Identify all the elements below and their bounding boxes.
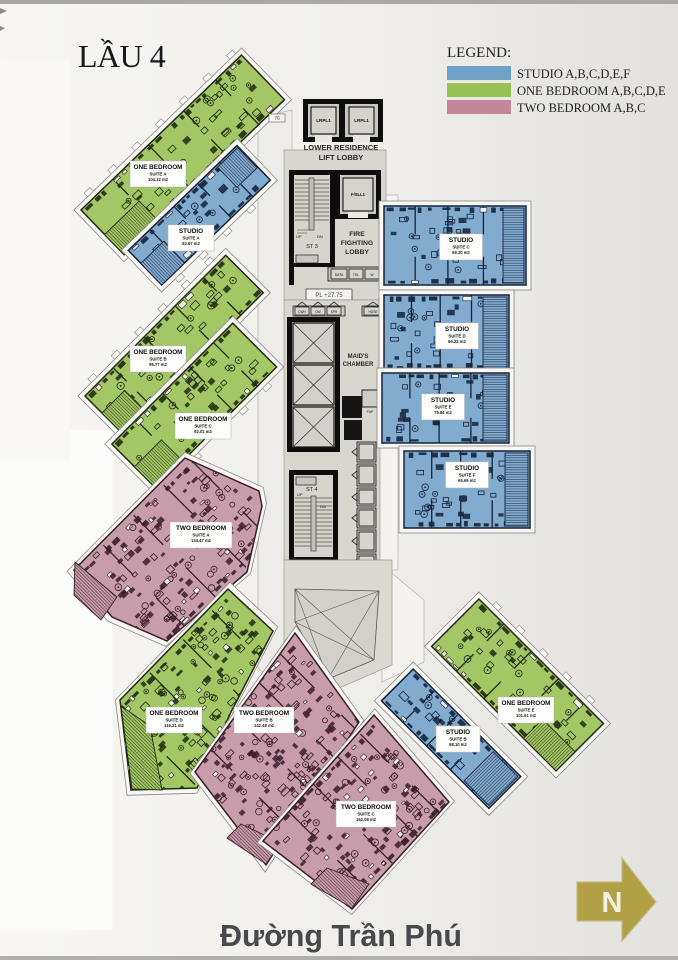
svg-text:STUDIO: STUDIO <box>431 397 455 404</box>
svg-text:69.30 m2: 69.30 m2 <box>452 250 470 255</box>
svg-text:104.12 m2: 104.12 m2 <box>148 177 169 182</box>
svg-text:LEGEND:: LEGEND: <box>447 45 511 61</box>
svg-text:SUITE D: SUITE D <box>448 334 465 339</box>
svg-text:76.84 m2: 76.84 m2 <box>434 410 452 415</box>
svg-text:TWO BEDROOM: TWO BEDROOM <box>176 525 226 532</box>
svg-text:101.61 m2: 101.61 m2 <box>516 713 537 718</box>
svg-text:FIGHTING: FIGHTING <box>341 240 373 247</box>
svg-text:LIFT LOBBY: LIFT LOBBY <box>319 153 364 162</box>
svg-text:STUDIO: STUDIO <box>449 237 473 244</box>
svg-text:TWO BEDROOM: TWO BEDROOM <box>239 710 289 717</box>
svg-text:F/SLL1: F/SLL1 <box>351 192 366 197</box>
svg-text:SUITE C: SUITE C <box>452 245 470 250</box>
svg-text:LRPL1: LRPL1 <box>316 118 331 123</box>
svg-text:ONE BEDROOM A,B,C,D,E: ONE BEDROOM A,B,C,D,E <box>517 84 666 98</box>
svg-text:MAID'S: MAID'S <box>348 354 369 360</box>
svg-text:DN: DN <box>320 504 326 509</box>
svg-text:134.47 m2: 134.47 m2 <box>191 538 212 543</box>
svg-text:STUDIO: STUDIO <box>179 228 203 235</box>
svg-text:SUITE C: SUITE C <box>357 812 375 817</box>
svg-text:DN: DN <box>317 234 323 239</box>
svg-text:UP: UP <box>297 492 303 497</box>
svg-text:SUITE B: SUITE B <box>255 718 272 723</box>
svg-text:SUITE E: SUITE E <box>517 708 534 713</box>
svg-text:SUITE D: SUITE D <box>165 718 182 723</box>
svg-text:SUITE B: SUITE B <box>149 357 166 362</box>
svg-text:SUITE A: SUITE A <box>149 172 167 177</box>
svg-text:UP: UP <box>296 234 302 239</box>
svg-text:SUITE E: SUITE E <box>434 405 451 410</box>
svg-text:ST 3: ST 3 <box>306 244 318 250</box>
svg-text:65.69 m2: 65.69 m2 <box>458 478 476 483</box>
svg-text:SUITE A: SUITE A <box>182 236 200 241</box>
svg-text:HOSE: HOSE <box>368 310 377 314</box>
svg-text:LẦU 4: LẦU 4 <box>78 38 166 74</box>
svg-text:SPR: SPR <box>331 310 338 314</box>
svg-text:CWH: CWH <box>298 310 306 314</box>
svg-text:92.67 m2: 92.67 m2 <box>182 241 200 246</box>
svg-text:ONE BEDROOM: ONE BEDROOM <box>179 416 228 423</box>
svg-text:SUITE B: SUITE B <box>449 737 466 742</box>
svg-text:LOBBY: LOBBY <box>345 249 369 256</box>
svg-text:ONE BEDROOM: ONE BEDROOM <box>134 164 183 171</box>
svg-text:95.77 m2: 95.77 m2 <box>149 362 167 367</box>
svg-text:STUDIO: STUDIO <box>446 729 470 736</box>
svg-text:SUITE C: SUITE C <box>194 424 212 429</box>
svg-text:STUDIO: STUDIO <box>455 465 479 472</box>
svg-text:STUDIO: STUDIO <box>445 326 469 333</box>
svg-text:DATA: DATA <box>335 273 344 277</box>
svg-text:76: 76 <box>274 116 280 122</box>
svg-text:92.01 m2: 92.01 m2 <box>194 429 212 434</box>
svg-text:ST 4: ST 4 <box>306 487 318 493</box>
svg-text:N: N <box>602 887 623 919</box>
svg-text:TWO BEDROOM: TWO BEDROOM <box>341 804 391 811</box>
svg-text:142.48 m2: 142.48 m2 <box>254 723 275 728</box>
svg-text:PL +27.75: PL +27.75 <box>315 293 343 299</box>
svg-text:LRPL1: LRPL1 <box>354 118 369 123</box>
svg-text:FAP: FAP <box>367 410 374 414</box>
svg-text:58.10 m2: 58.10 m2 <box>449 742 467 747</box>
svg-text:ONE BEDROOM: ONE BEDROOM <box>502 700 551 707</box>
svg-text:Đường Trần Phú: Đường Trần Phú <box>220 919 462 953</box>
svg-text:66.22 m2: 66.22 m2 <box>448 339 466 344</box>
svg-text:CHAMBER: CHAMBER <box>343 362 374 368</box>
svg-text:DW: DW <box>315 310 320 314</box>
svg-text:TEL: TEL <box>353 273 359 277</box>
svg-text:TWO BEDROOM A,B,C: TWO BEDROOM A,B,C <box>517 101 645 115</box>
svg-text:119.21 m2: 119.21 m2 <box>164 723 184 728</box>
svg-text:FIRE: FIRE <box>349 231 365 238</box>
svg-text:SUITE A: SUITE A <box>192 533 210 538</box>
svg-text:ONE BEDROOM: ONE BEDROOM <box>150 710 199 717</box>
svg-text:ONE BEDROOM: ONE BEDROOM <box>134 349 183 356</box>
svg-text:162.08 m2: 162.08 m2 <box>356 817 377 822</box>
svg-text:SUITE F: SUITE F <box>459 473 476 478</box>
svg-text:STUDIO A,B,C,D,E,F: STUDIO A,B,C,D,E,F <box>517 67 630 81</box>
svg-text:LOWER RESIDENCE: LOWER RESIDENCE <box>304 143 379 152</box>
